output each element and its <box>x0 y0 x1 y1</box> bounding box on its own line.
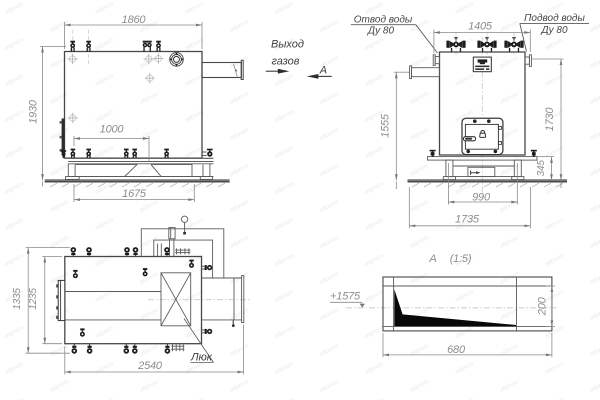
svg-text:680: 680 <box>447 344 466 356</box>
svg-text:1235: 1235 <box>28 288 39 310</box>
svg-text:1675: 1675 <box>122 188 147 200</box>
svg-text:Подвод воды: Подвод воды <box>524 13 585 24</box>
svg-text:1000: 1000 <box>100 123 125 135</box>
svg-text:345: 345 <box>536 160 547 177</box>
svg-text:1405: 1405 <box>468 20 493 32</box>
svg-text:1555: 1555 <box>380 113 392 138</box>
svg-text:Ду 80: Ду 80 <box>540 25 567 36</box>
svg-text:1735: 1735 <box>455 214 480 226</box>
svg-text:Отвод воды: Отвод воды <box>354 15 413 26</box>
svg-text:2540: 2540 <box>137 360 163 372</box>
svg-text:1335: 1335 <box>12 288 23 310</box>
svg-text:1860: 1860 <box>122 14 147 26</box>
svg-text:Ду 80: Ду 80 <box>367 26 394 37</box>
svg-text:Люк: Люк <box>190 352 213 364</box>
svg-text:1930: 1930 <box>27 99 39 124</box>
svg-text:200: 200 <box>537 296 549 316</box>
svg-text:(1:5): (1:5) <box>450 253 472 265</box>
svg-text:1730: 1730 <box>544 107 556 132</box>
svg-text:+1575: +1575 <box>330 290 361 302</box>
svg-text:А: А <box>319 65 327 77</box>
svg-text:Выход: Выход <box>271 39 304 51</box>
svg-text:газов: газов <box>271 56 299 68</box>
svg-text:А: А <box>428 253 436 265</box>
svg-text:990: 990 <box>472 191 491 203</box>
